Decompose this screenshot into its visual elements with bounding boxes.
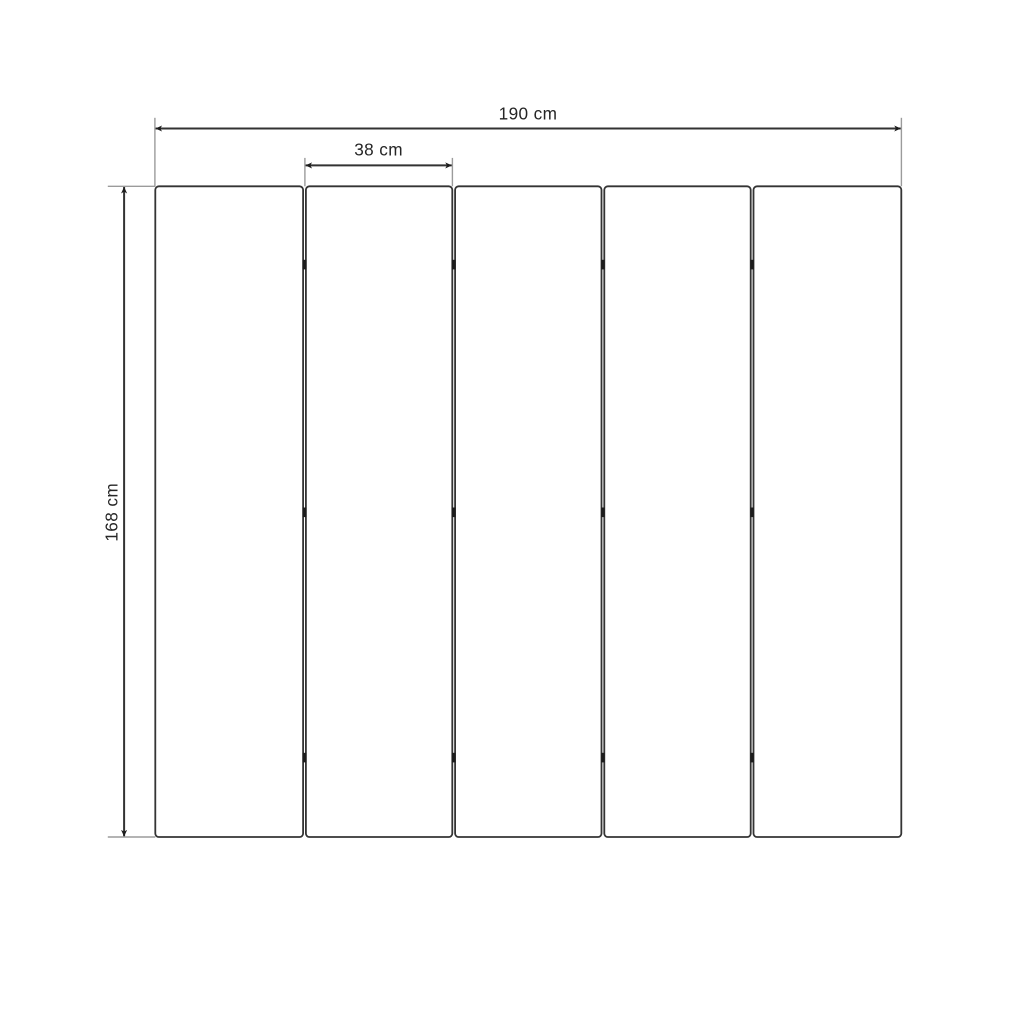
svg-text:38 cm: 38 cm	[354, 139, 403, 159]
svg-text:190 cm: 190 cm	[499, 104, 558, 124]
svg-text:168 cm: 168 cm	[101, 483, 121, 542]
